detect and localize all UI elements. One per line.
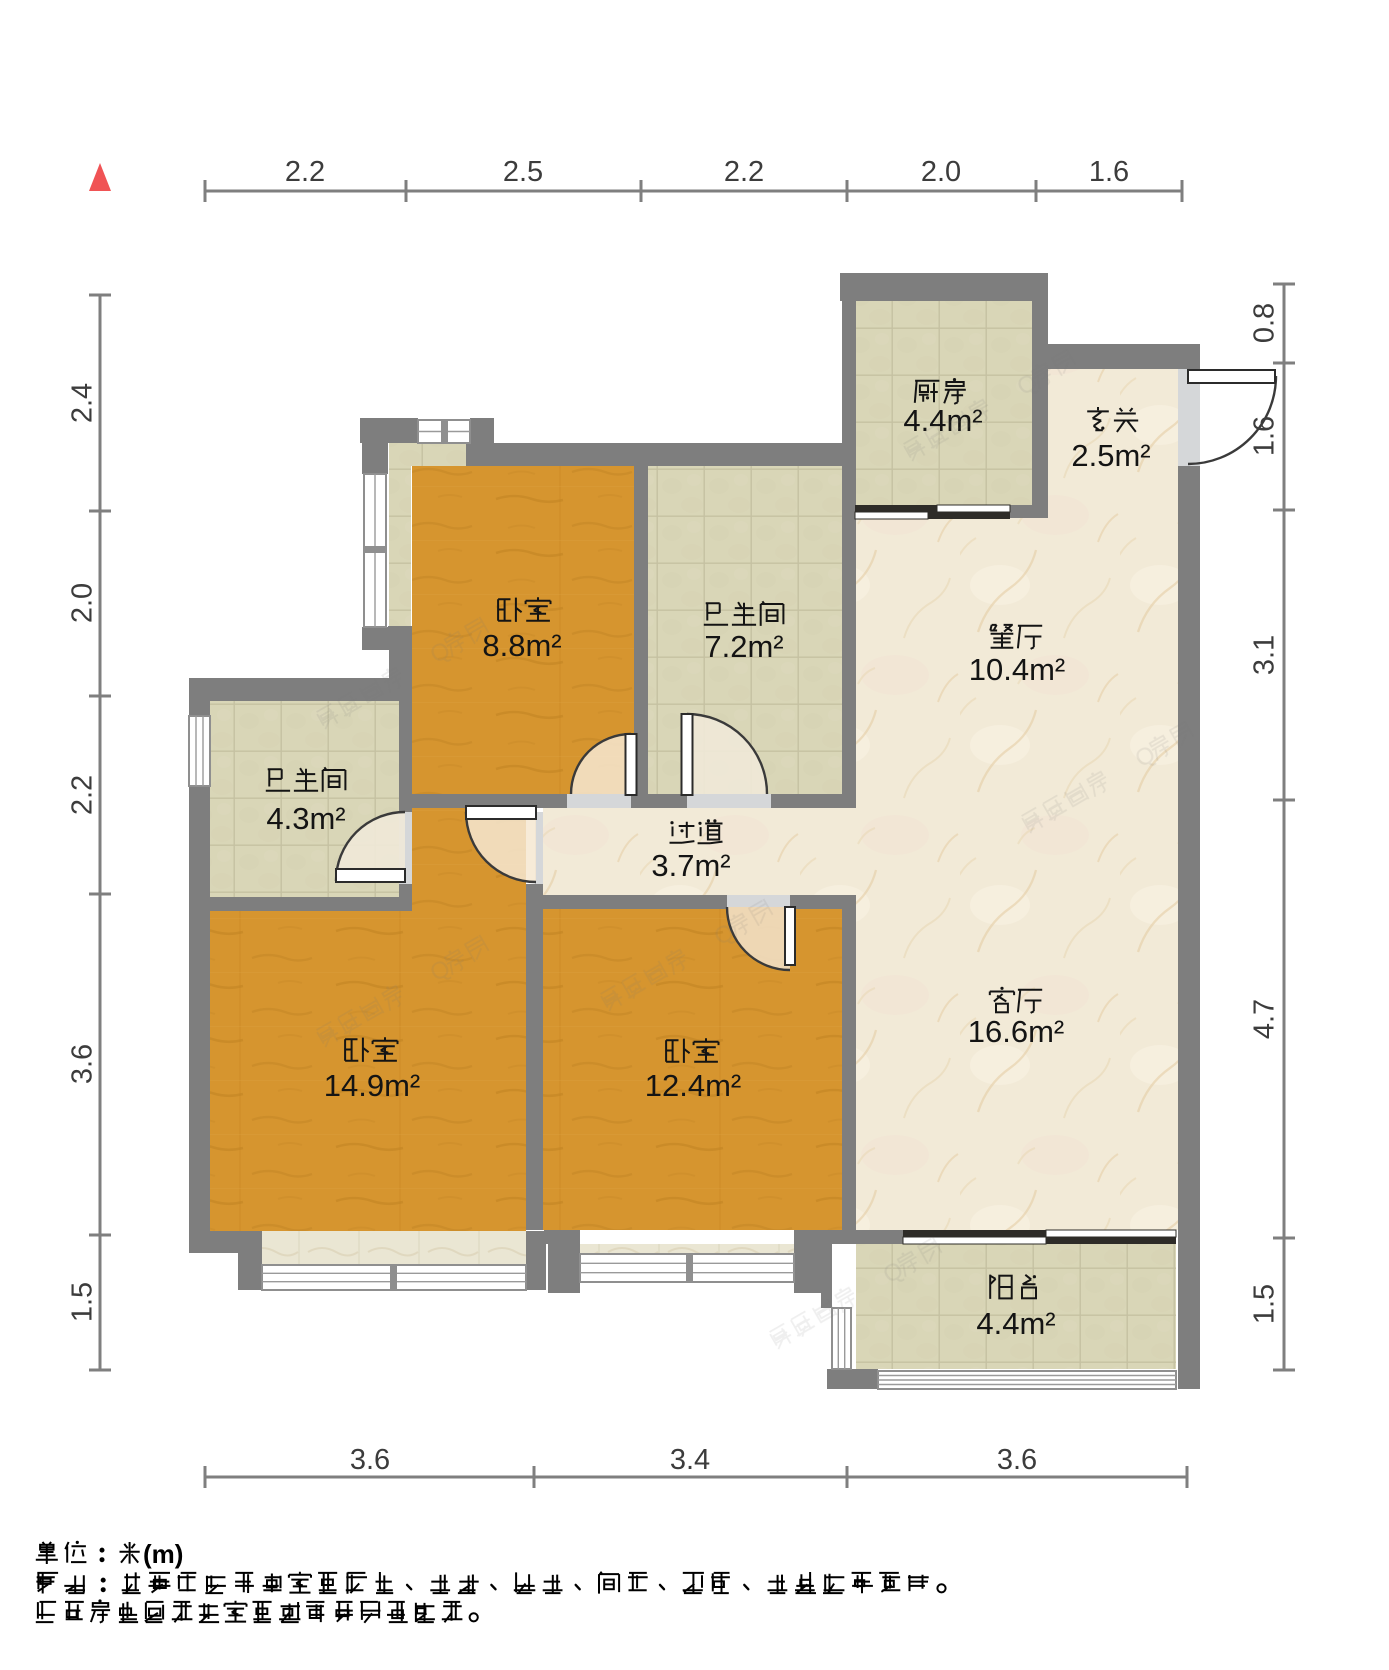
svg-text:2.2: 2.2	[285, 156, 325, 188]
svg-text:4.4m²: 4.4m²	[976, 1306, 1055, 1341]
svg-text:3.7m²: 3.7m²	[651, 848, 730, 883]
svg-text:2.2: 2.2	[724, 156, 764, 188]
svg-text:12.4m²: 12.4m²	[645, 1068, 741, 1103]
svg-text:8.8m²: 8.8m²	[482, 628, 561, 663]
svg-text:3.6: 3.6	[350, 1444, 390, 1476]
svg-text:3.4: 3.4	[670, 1444, 710, 1476]
svg-text:4.7: 4.7	[1249, 999, 1281, 1039]
svg-text:1.5: 1.5	[67, 1282, 99, 1322]
svg-text:2.4: 2.4	[67, 383, 99, 423]
svg-text:1.6: 1.6	[1249, 416, 1281, 456]
svg-text:1.6: 1.6	[1089, 156, 1129, 188]
svg-text:0.8: 0.8	[1249, 303, 1281, 343]
svg-text:2.0: 2.0	[67, 583, 99, 623]
svg-text:2.2: 2.2	[67, 775, 99, 815]
svg-text:2.0: 2.0	[921, 156, 961, 188]
svg-text:3.6: 3.6	[997, 1444, 1037, 1476]
svg-text:4.3m²: 4.3m²	[266, 801, 345, 836]
svg-text:2.5m²: 2.5m²	[1071, 438, 1150, 473]
svg-text:10.4m²: 10.4m²	[969, 652, 1065, 687]
svg-text:14.9m²: 14.9m²	[324, 1068, 420, 1103]
svg-text:3.6: 3.6	[67, 1044, 99, 1084]
svg-text:16.6m²: 16.6m²	[968, 1014, 1064, 1049]
svg-text:(m): (m)	[143, 1539, 183, 1569]
svg-text:3.1: 3.1	[1249, 635, 1281, 675]
svg-text:2.5: 2.5	[503, 156, 543, 188]
svg-text:7.2m²: 7.2m²	[704, 629, 783, 664]
svg-text:1.5: 1.5	[1249, 1284, 1281, 1324]
